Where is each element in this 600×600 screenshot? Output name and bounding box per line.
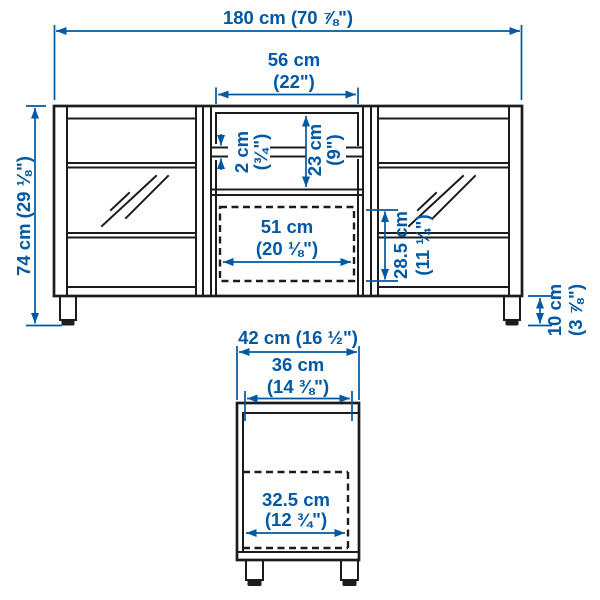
dim-open-compartment-height: 23 cm (9") bbox=[304, 116, 344, 187]
dim-leg-height: 10 cm (3 ⅞") bbox=[528, 284, 586, 336]
front-left-leg bbox=[60, 296, 76, 326]
dim-middle-width-label: 56 cm bbox=[268, 49, 320, 70]
leg bbox=[504, 296, 520, 320]
side-front-leg bbox=[246, 560, 263, 586]
dim-top-depth-label-inches: (14 ⅜") bbox=[267, 376, 329, 397]
dim-open-compartment-height-label: 23 cm bbox=[304, 124, 325, 176]
leg-foot bbox=[248, 579, 262, 586]
dim-total-depth-label: 42 cm (16 ½") bbox=[238, 327, 358, 348]
dim-drawer-opening-height-label-inches: (11 ¼") bbox=[412, 214, 433, 275]
dim-leg-height-label-inches: (3 ⅞") bbox=[565, 284, 586, 336]
leg-foot bbox=[343, 579, 357, 586]
dim-total-width-label: 180 cm (70 ⅞") bbox=[223, 7, 353, 28]
dim-top-depth-label: 36 cm bbox=[272, 354, 324, 375]
side-back-leg bbox=[341, 560, 358, 586]
dim-drawer-depth-label: 32.5 cm bbox=[262, 489, 330, 510]
dim-middle-width-label-inches: (22") bbox=[273, 71, 315, 92]
dim-drawer-opening-height-label: 28.5 cm bbox=[390, 211, 411, 279]
dim-drawer-opening-height: 28.5 cm (11 ¼") bbox=[366, 210, 433, 281]
dim-shelf-thickness-label-inches: (¾") bbox=[250, 134, 271, 171]
leg-foot bbox=[62, 319, 75, 326]
glass-pane-icon bbox=[102, 176, 168, 226]
dim-drawer-depth-label-inches: (12 ¾") bbox=[265, 509, 327, 530]
leg bbox=[60, 296, 76, 320]
dim-shelf-thickness: 2 cm (¾") bbox=[221, 131, 271, 173]
leg bbox=[341, 560, 358, 580]
side-outline bbox=[237, 403, 359, 560]
dim-drawer-depth: 32.5 cm (12 ¾") bbox=[246, 489, 345, 533]
front-left-cabinet-lines bbox=[67, 106, 203, 296]
front-right-leg bbox=[504, 296, 520, 326]
dim-drawer-opening-width-label: 51 cm bbox=[261, 216, 313, 237]
leg-foot bbox=[506, 319, 519, 326]
dim-drawer-opening-width-label-inches: (20 ⅛") bbox=[256, 238, 318, 259]
dim-leg-height-label: 10 cm bbox=[544, 284, 565, 336]
front-outline bbox=[54, 106, 522, 296]
product-dimension-diagram: 180 cm (70 ⅞") 56 cm (22") 74 cm (29 ⅛")… bbox=[0, 0, 600, 600]
dim-shelf-thickness-label: 2 cm bbox=[231, 131, 252, 173]
side-panel-lines bbox=[237, 413, 359, 552]
dim-top-depth: 36 cm (14 ⅜") bbox=[245, 354, 352, 421]
diagram-canvas: 180 cm (70 ⅞") 56 cm (22") 74 cm (29 ⅛")… bbox=[0, 0, 600, 600]
dim-middle-width: 56 cm (22") bbox=[216, 49, 358, 104]
dim-open-compartment-height-label-inches: (9") bbox=[323, 134, 344, 165]
dim-total-height-label: 74 cm (29 ⅛") bbox=[13, 156, 34, 276]
leg bbox=[246, 560, 263, 580]
dim-drawer-opening-width: 51 cm (20 ⅛") bbox=[223, 216, 351, 262]
